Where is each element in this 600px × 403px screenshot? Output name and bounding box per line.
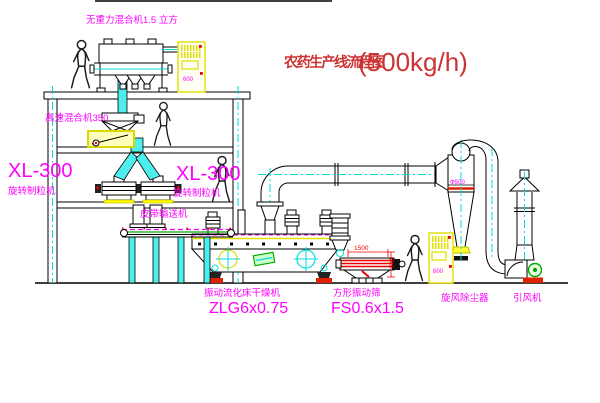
person-figure-top-floor <box>72 41 90 88</box>
control-cabinet-bottom: 600 <box>429 233 453 283</box>
exhaust-stack <box>510 170 539 262</box>
dryer-model-label: ZLG6x0.75 <box>209 300 288 317</box>
person-figure-ground <box>406 236 423 281</box>
gravity-free-mixer <box>90 39 181 92</box>
screen-model-label: FS0.6x1.5 <box>331 300 404 317</box>
gravity-mixer-label: 无重力混合机1.5 立方 <box>86 14 178 26</box>
cabinet-top-label: 600 <box>183 77 194 83</box>
cyclone-diameter-label: Φ500 <box>450 180 465 186</box>
title-capacity: (500kg/h) <box>358 47 468 77</box>
fan-label: 引风机 <box>513 292 542 304</box>
granulator-left-unit <box>95 176 142 203</box>
drawing-title: 农药生产线流程图 (500kg/h) <box>283 47 468 77</box>
production-line-drawing: Φ500 <box>0 0 600 403</box>
granulator-left-model: XL-300 <box>8 160 73 182</box>
dryer-name-label: 振动流化床干燥机 <box>204 287 281 299</box>
belt-conveyor-label: 皮带输送机 <box>140 208 188 220</box>
dimension-width-label: 1500 <box>354 245 369 252</box>
granulator-right-model: XL-300 <box>176 163 241 185</box>
induced-draft-fan <box>505 260 543 283</box>
granulator-left-name: 旋转制粒机 <box>8 185 56 197</box>
control-cabinet-top: 600 <box>178 42 205 92</box>
person-figure-mid-floor <box>154 102 170 145</box>
screen-name-label: 方形振动筛 <box>333 287 381 299</box>
cyclone-label: 旋风除尘器 <box>441 292 489 304</box>
dimension-height-label: 541 <box>389 257 396 268</box>
fan-base <box>523 278 543 284</box>
cabinet-bottom-label: 600 <box>433 269 444 275</box>
granulator-right-name: 旋转制粒机 <box>173 187 221 199</box>
flow-diagram-canvas: Φ500 <box>0 0 600 403</box>
vibrating-screen: 1500 541 <box>336 245 405 283</box>
high-speed-mixer-label: 高速混合机350 <box>45 112 108 124</box>
